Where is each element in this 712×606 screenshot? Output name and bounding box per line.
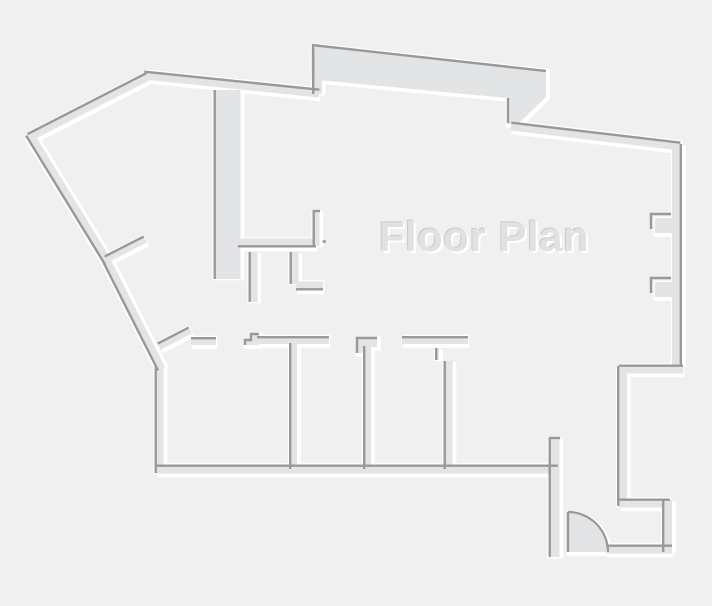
floor-plan-drawing: Floor Plan xyxy=(0,0,712,606)
right-wall-notch-lower xyxy=(655,282,679,297)
floor-plan-title: Floor Plan xyxy=(379,213,589,260)
plan-background xyxy=(0,0,712,606)
right-wall-notch-upper xyxy=(655,218,679,233)
floor-plan-canvas: Floor Plan xyxy=(0,0,712,606)
